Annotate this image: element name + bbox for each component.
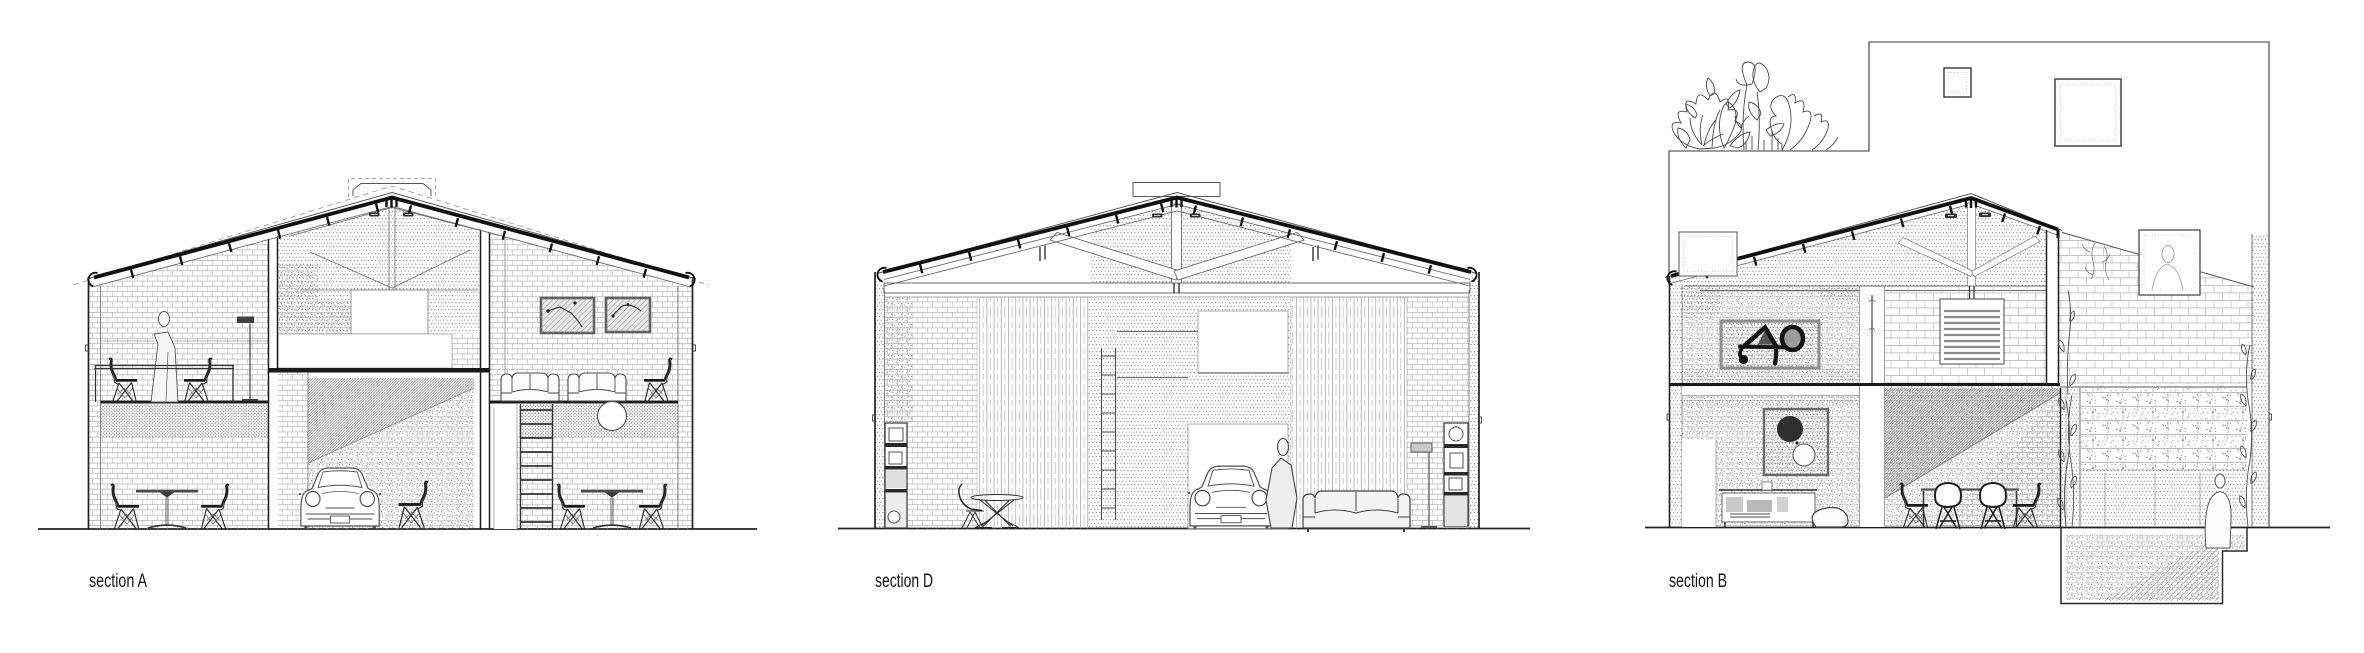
svg-text:section D: section D [875,571,933,592]
svg-text:section B: section B [1669,571,1727,592]
svg-text:section A: section A [89,571,147,592]
